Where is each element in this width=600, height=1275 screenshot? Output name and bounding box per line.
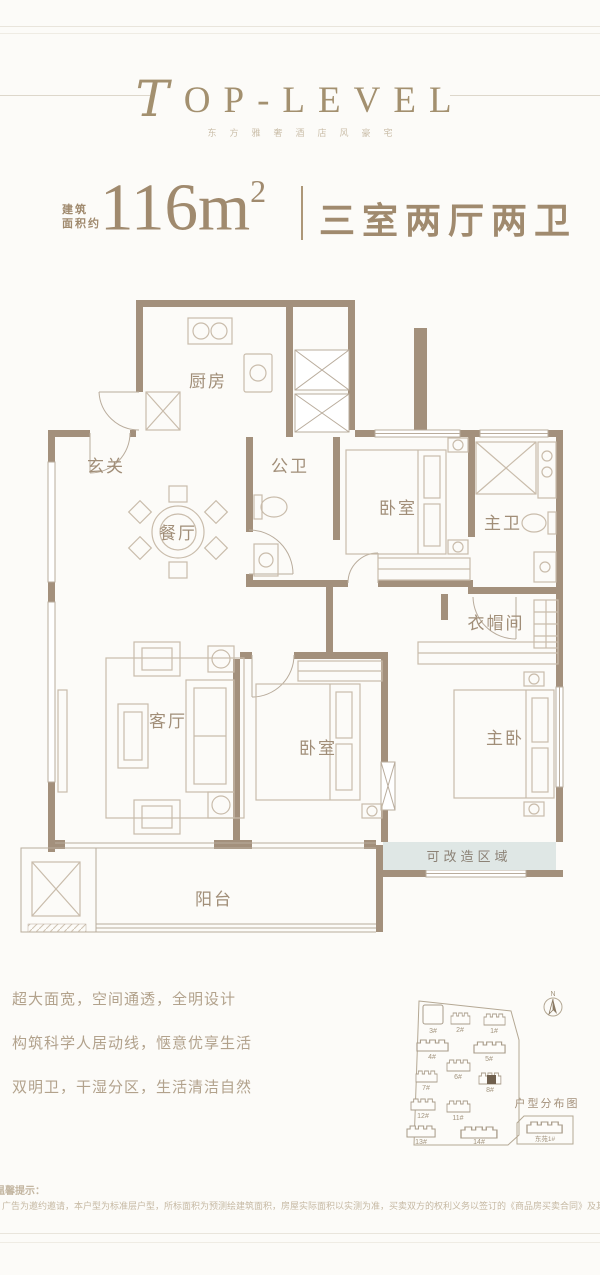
sitemap-title: 户型分布图 [515,1096,580,1110]
brand-initial: T [135,70,181,128]
area-sup: 2 [250,173,266,209]
bldg-label-4: 4# [428,1054,436,1061]
annex-label: 东苑1# [535,1134,556,1143]
area-number: 116m [100,170,250,244]
brand-title: TOP-LEVEL [135,66,464,124]
feature-line-1: 超大面宽，空间通透，全明设计 [12,988,252,1009]
floorplan-drawing: 厨房 玄关 公卫 餐厅 卧室 主卫 衣帽间 客厅 卧室 主卧 可改造区域 阳台 [18,292,580,970]
disclaimer-body: 广告为邀约邀请，本户型为标准层户型，所标面积为预测绘建筑面积，房屋实际面积以实测… [2,1199,600,1212]
room-label-balcony: 阳台 [195,890,233,909]
highlighted-building-8 [487,1075,496,1084]
brand-subtitle: 东方雅奢酒店风豪宅 [0,126,600,139]
bldg-label-12: 12# [417,1113,429,1120]
bldg-label-8: 8# [486,1087,494,1094]
bldg-label-13: 13# [415,1139,427,1146]
bottom-divider-line [0,1233,600,1234]
area-label-line2: 面积约 [62,217,101,231]
annex-block: 东苑1# [517,1116,573,1144]
room-label-renovatable: 可改造区域 [426,849,511,864]
area-label: 建筑 面积约 [62,203,101,231]
room-label-kitchen: 厨房 [189,372,227,391]
bldg-label-1: 1# [490,1028,498,1035]
bldg-label-6: 6# [454,1074,462,1081]
bldg-label-11: 11# [452,1115,463,1122]
brand-row: TOP-LEVEL [0,66,600,124]
disclaimer-title: 温馨提示： [0,1182,45,1197]
room-label-dining: 餐厅 [159,524,197,543]
room-label-cloakroom: 衣帽间 [468,614,525,633]
bottom-divider-line-2 [0,1242,600,1243]
bldg-label-3: 3# [429,1028,437,1035]
feature-list: 超大面宽，空间通透，全明设计 构筑科学人居动线，惬意优享生活 双明卫，干湿分区，… [12,988,252,1120]
compass-n-label: N [550,991,555,998]
room-label-public-bath: 公卫 [271,457,309,476]
brand-rest: OP-LEVEL [184,80,465,121]
bldg-label-5: 5# [485,1056,493,1063]
headline-divider [301,186,303,240]
bldg-label-2: 2# [456,1027,464,1034]
feature-line-2: 构筑科学人居动线，惬意优享生活 [12,1032,252,1053]
room-label-master-bath: 主卫 [484,514,522,533]
layout-name: 三室两厅两卫 [319,192,577,244]
room-label-entrance: 玄关 [87,457,125,476]
top-divider-line-2 [0,33,600,34]
feature-line-3: 双明卫，干湿分区，生活清洁自然 [12,1076,252,1097]
bldg-label-14: 14# [473,1139,485,1146]
room-label-bedroom-top: 卧室 [379,499,417,518]
area-label-line1: 建筑 [62,203,101,217]
room-label-master-bedroom: 主卧 [486,729,524,748]
room-label-bedroom-mid: 卧室 [299,739,337,758]
site-map: 3# 2# 1# 4# 5# 6# 7# 8# 12# 11# 13# 14# … [393,988,598,1173]
room-label-living: 客厅 [149,712,187,731]
compass-icon: N [544,991,562,1016]
top-divider-line [0,26,600,27]
bldg-label-7: 7# [422,1085,430,1092]
area-value: 116m2 [100,160,266,242]
floorplan-page: TOP-LEVEL 东方雅奢酒店风豪宅 建筑 面积约 116m2 三室两厅两卫 [0,0,600,1275]
